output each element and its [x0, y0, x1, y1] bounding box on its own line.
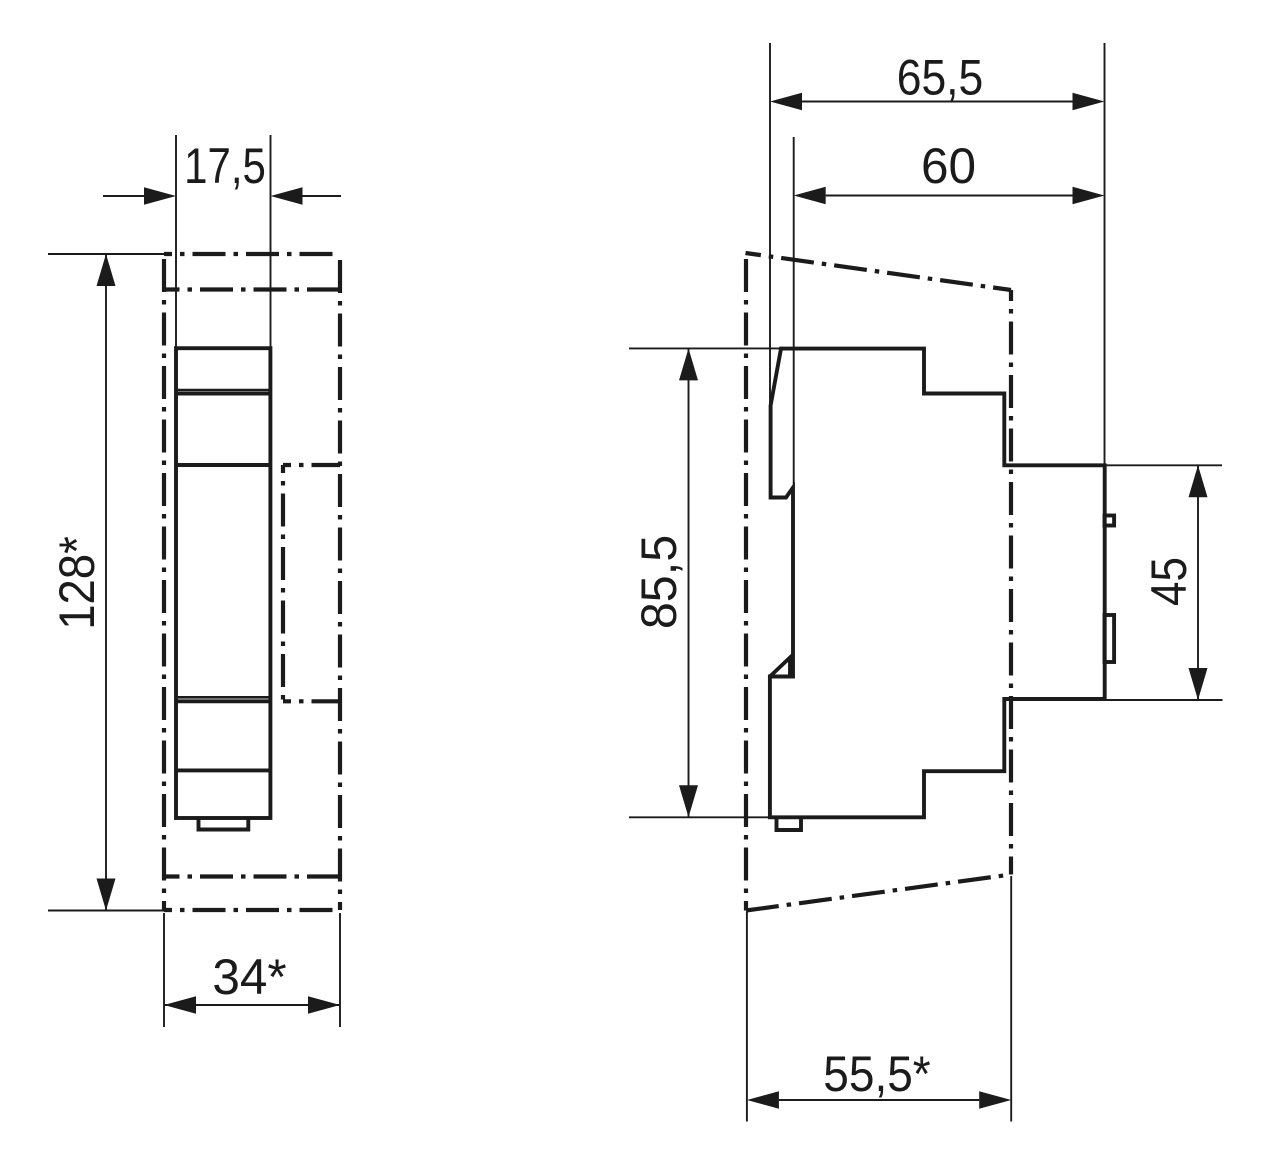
- svg-text:85,5: 85,5: [631, 535, 687, 629]
- svg-text:128*: 128*: [50, 536, 105, 630]
- svg-text:65,5: 65,5: [897, 50, 984, 106]
- svg-text:17,5: 17,5: [184, 138, 266, 194]
- svg-text:60: 60: [921, 138, 976, 194]
- svg-text:55,5*: 55,5*: [823, 1047, 930, 1102]
- svg-text:34*: 34*: [212, 949, 286, 1005]
- svg-text:45: 45: [1140, 557, 1196, 606]
